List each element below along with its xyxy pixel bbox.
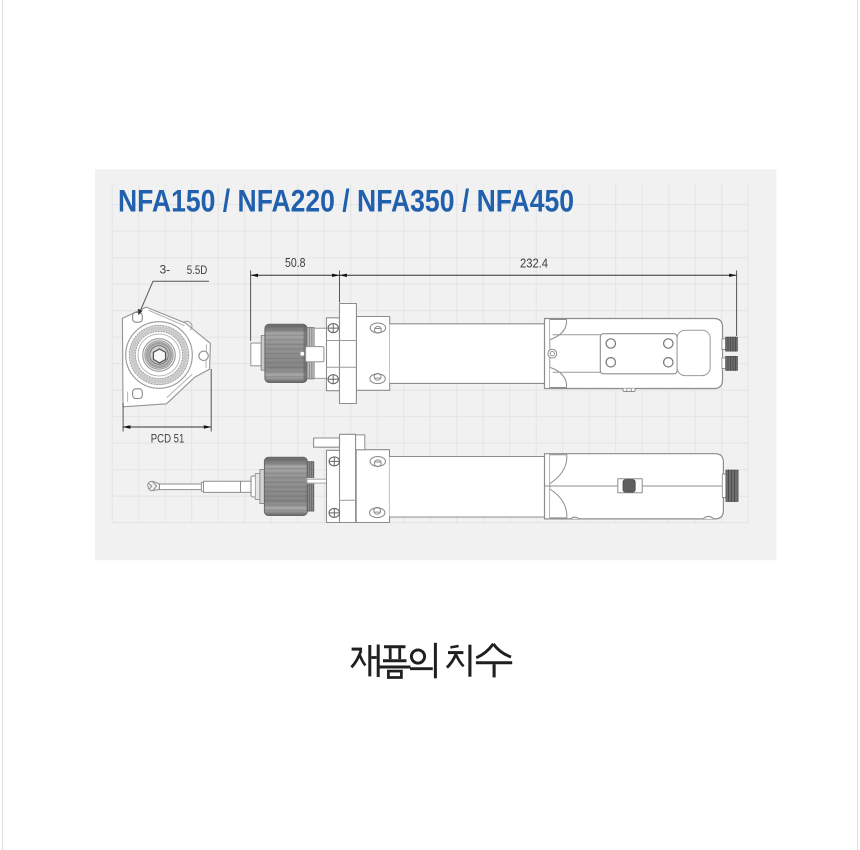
svg-text:PCD 51: PCD 51 [151,432,185,446]
svg-text:3-: 3- [160,263,171,277]
svg-text:5.5D: 5.5D [187,263,208,277]
svg-text:NFA150 / NFA220 / NFA350 / NFA: NFA150 / NFA220 / NFA350 / NFA450 [118,183,574,219]
svg-text:50.8: 50.8 [285,256,306,270]
svg-text:232.4: 232.4 [520,257,548,271]
